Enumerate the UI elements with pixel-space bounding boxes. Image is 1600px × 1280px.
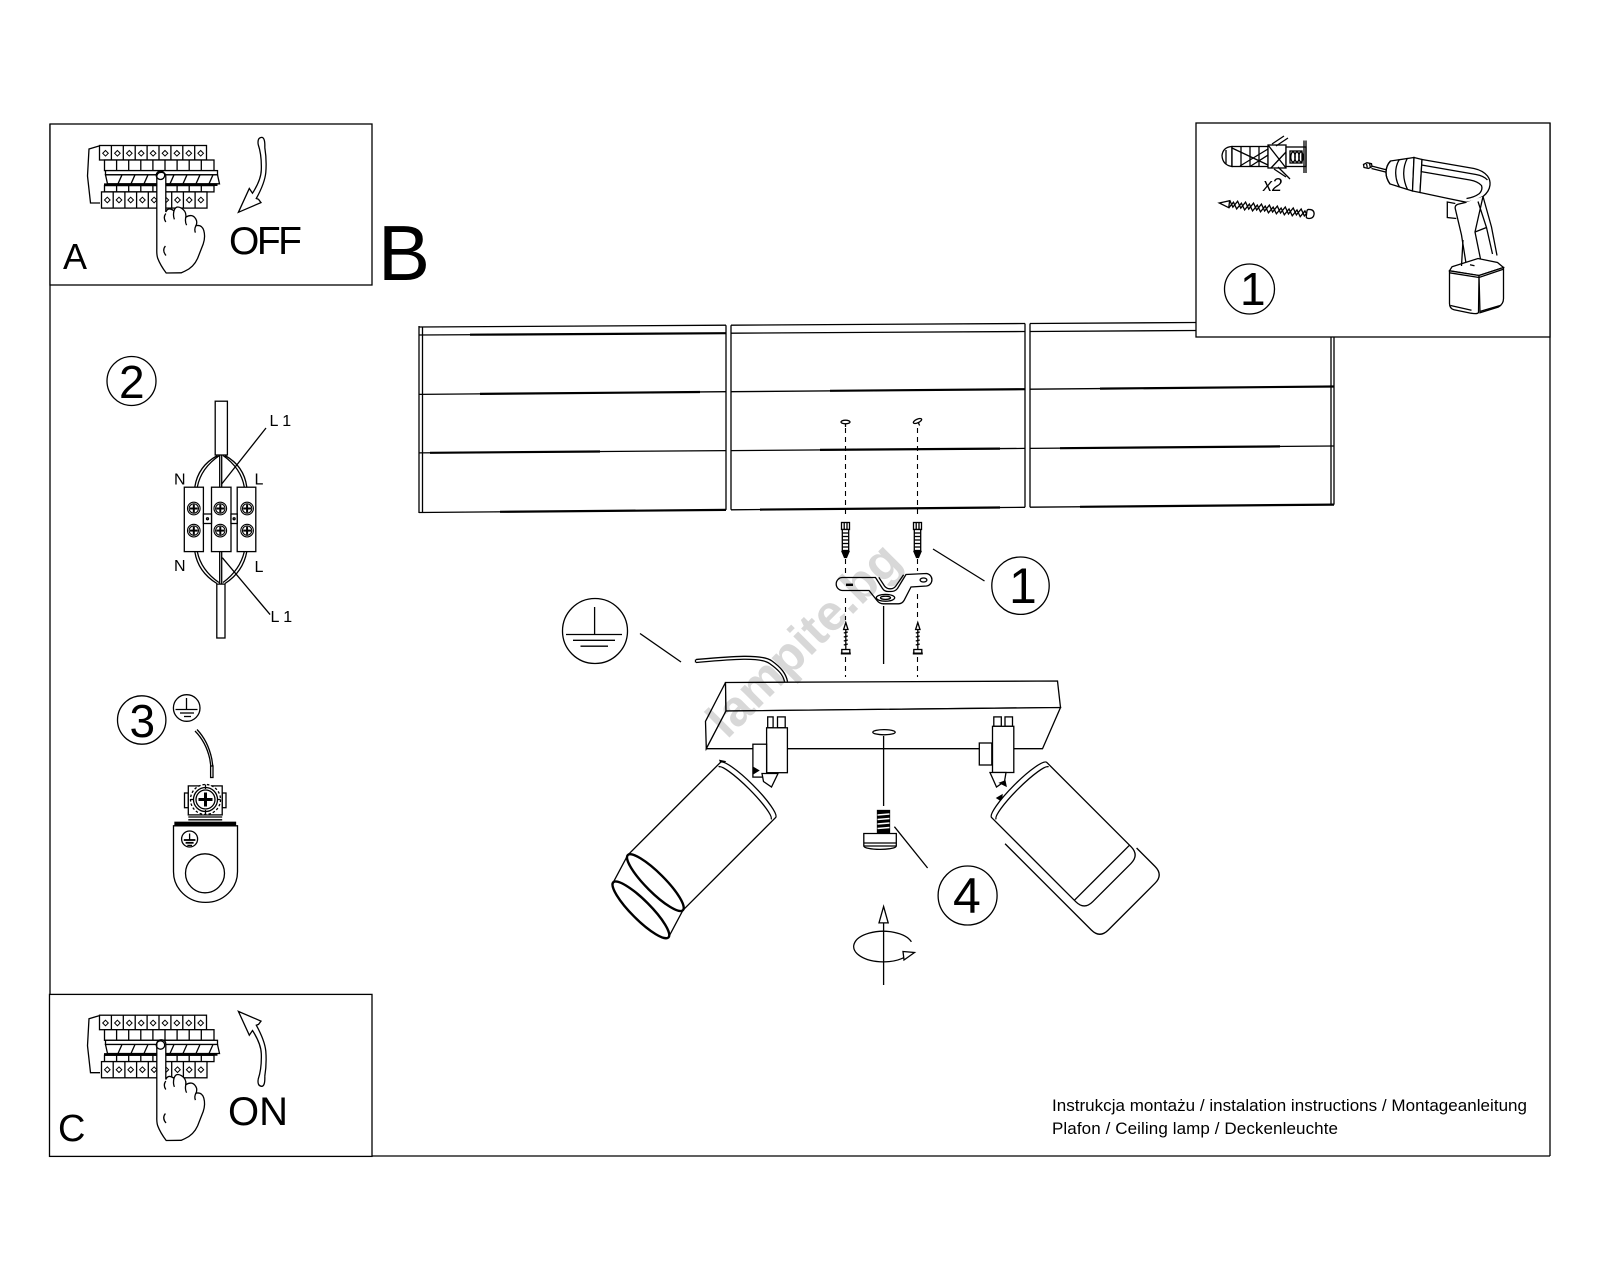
svg-text:x2: x2	[1262, 175, 1282, 195]
svg-text:A: A	[63, 236, 87, 277]
svg-text:3: 3	[130, 695, 156, 747]
svg-text:Plafon / Ceiling lamp / Decken: Plafon / Ceiling lamp / Deckenleuchte	[1052, 1119, 1338, 1138]
svg-text:N: N	[174, 558, 186, 575]
svg-text:ON: ON	[228, 1090, 288, 1134]
svg-text:C: C	[58, 1108, 85, 1150]
svg-text:2: 2	[119, 356, 145, 408]
svg-text:1: 1	[1009, 558, 1037, 614]
svg-text:4: 4	[953, 868, 981, 924]
svg-text:L 1: L 1	[271, 609, 293, 626]
svg-text:L: L	[255, 559, 264, 576]
svg-text:N: N	[174, 472, 186, 489]
svg-text:L: L	[255, 472, 264, 489]
svg-text:1: 1	[1240, 263, 1266, 315]
svg-text:OFF: OFF	[229, 220, 302, 263]
svg-text:L 1: L 1	[270, 413, 292, 430]
svg-text:Instrukcja montażu / instalati: Instrukcja montażu / instalation instruc…	[1052, 1096, 1527, 1115]
svg-text:B: B	[378, 209, 430, 297]
